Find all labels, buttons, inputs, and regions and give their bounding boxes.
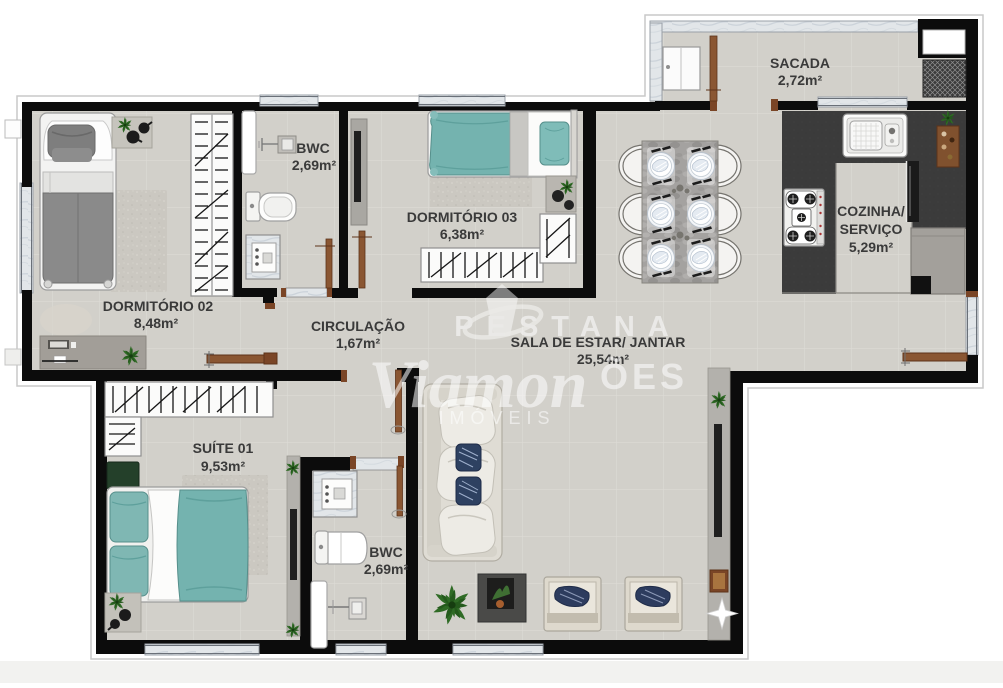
svg-text:CIRCULAÇÃO: CIRCULAÇÃO <box>311 317 405 334</box>
svg-text:IMÓVEIS: IMÓVEIS <box>438 407 555 428</box>
svg-text:ÕES: ÕES <box>600 355 688 397</box>
svg-text:8,48m²: 8,48m² <box>134 315 179 331</box>
svg-text:BWC: BWC <box>296 140 329 156</box>
svg-text:DORMITÓRIO 03: DORMITÓRIO 03 <box>407 208 518 225</box>
svg-text:COZINHA/: COZINHA/ <box>837 203 905 219</box>
svg-text:2,72m²: 2,72m² <box>778 72 823 88</box>
svg-text:9,53m²: 9,53m² <box>201 458 246 474</box>
svg-text:PESTANA: PESTANA <box>454 311 681 343</box>
svg-text:5,29m²: 5,29m² <box>849 239 894 255</box>
svg-text:6,38m²: 6,38m² <box>440 226 485 242</box>
svg-text:SACADA: SACADA <box>770 55 830 71</box>
svg-text:SERVIÇO: SERVIÇO <box>840 221 903 237</box>
svg-text:SUÍTE 01: SUÍTE 01 <box>193 440 254 456</box>
svg-text:DORMITÓRIO 02: DORMITÓRIO 02 <box>103 297 214 314</box>
svg-text:2,69m²: 2,69m² <box>364 561 409 577</box>
svg-text:BWC: BWC <box>369 544 402 560</box>
svg-text:2,69m²: 2,69m² <box>292 157 337 173</box>
